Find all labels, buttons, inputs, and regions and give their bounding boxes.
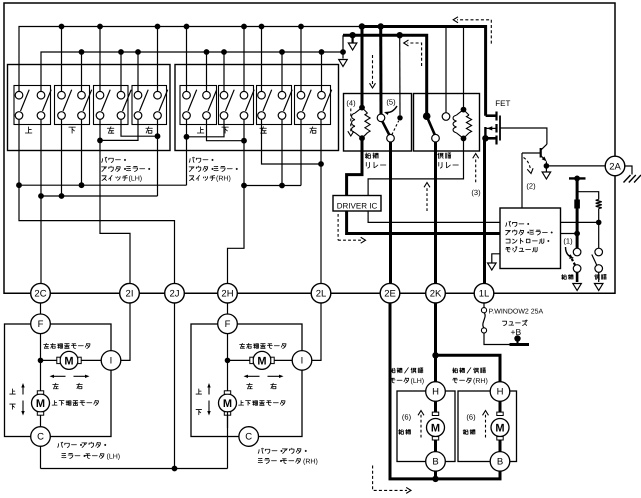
svg-text:C: C: [37, 432, 44, 443]
svg-text:F: F: [225, 319, 231, 330]
svg-text:+B: +B: [511, 327, 522, 337]
svg-text:B: B: [432, 457, 438, 468]
svg-text:2E: 2E: [384, 289, 396, 300]
svg-text:2K: 2K: [430, 289, 442, 300]
svg-text:2J: 2J: [169, 289, 179, 300]
svg-text:I: I: [301, 356, 304, 367]
svg-text:(6): (6): [402, 413, 412, 422]
svg-text:M: M: [223, 398, 232, 410]
svg-text:(3): (3): [471, 188, 481, 197]
svg-text:M: M: [257, 355, 266, 367]
svg-text:2L: 2L: [316, 289, 327, 300]
svg-text:DRIVER IC: DRIVER IC: [337, 201, 378, 210]
svg-text:M: M: [64, 355, 73, 367]
svg-text:1L: 1L: [479, 289, 490, 300]
svg-text:(2): (2): [526, 182, 536, 191]
svg-text:M: M: [495, 423, 504, 435]
svg-text:P.WINDOW2 25A: P.WINDOW2 25A: [489, 309, 544, 316]
svg-text:2C: 2C: [34, 289, 46, 300]
svg-text:B: B: [497, 457, 503, 468]
svg-text:(5): (5): [386, 98, 396, 107]
svg-text:M: M: [431, 423, 440, 435]
svg-text:2I: 2I: [126, 289, 134, 300]
svg-text:(6): (6): [466, 413, 476, 422]
svg-text:(LH): (LH): [107, 453, 121, 461]
svg-text:C: C: [245, 432, 252, 443]
svg-text:M: M: [36, 398, 45, 410]
svg-text:(RH): (RH): [473, 377, 488, 385]
svg-text:(RH): (RH): [216, 175, 231, 183]
svg-text:FET: FET: [495, 99, 510, 108]
svg-text:(4): (4): [346, 99, 356, 108]
svg-text:(LH): (LH): [411, 377, 425, 385]
svg-text:(LH): (LH): [129, 175, 143, 183]
svg-text:(1): (1): [563, 237, 573, 246]
svg-text:F: F: [38, 319, 44, 330]
svg-text:I: I: [110, 356, 113, 367]
svg-text:2H: 2H: [221, 289, 233, 300]
svg-text:2A: 2A: [609, 161, 621, 172]
svg-text:H: H: [497, 387, 504, 398]
svg-text:H: H: [432, 387, 439, 398]
svg-text:(RH): (RH): [303, 458, 318, 466]
